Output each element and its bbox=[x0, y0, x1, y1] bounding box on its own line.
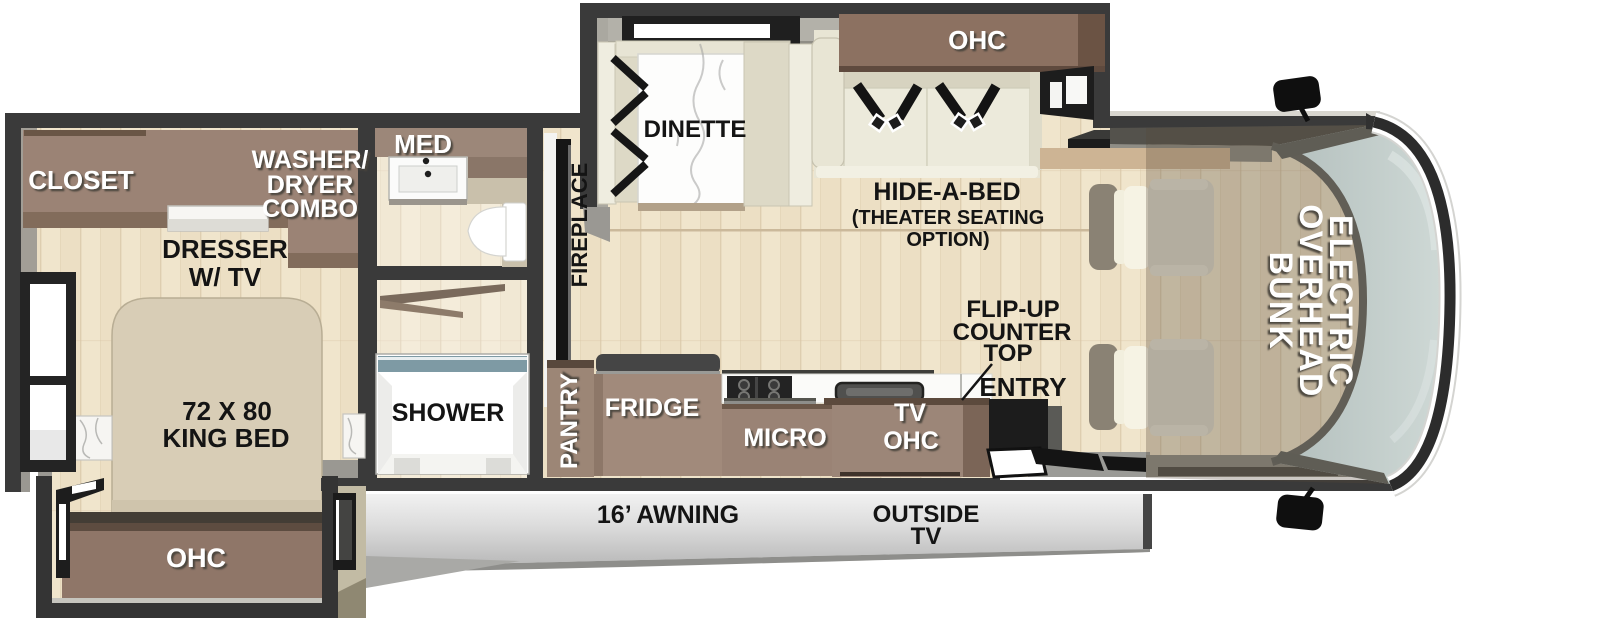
svg-text:DRESSER: DRESSER bbox=[162, 234, 288, 264]
svg-text:OHC: OHC bbox=[948, 25, 1006, 55]
svg-text:FRIDGE: FRIDGE bbox=[605, 394, 699, 422]
svg-text:PANTRY: PANTRY bbox=[556, 373, 583, 469]
svg-text:ENTRY: ENTRY bbox=[979, 372, 1066, 402]
svg-text:BUNK: BUNK bbox=[1263, 252, 1299, 350]
svg-text:TV: TV bbox=[911, 523, 942, 550]
svg-text:MED: MED bbox=[394, 129, 452, 159]
svg-text:HIDE-A-BED: HIDE-A-BED bbox=[873, 178, 1020, 206]
svg-text:KING BED: KING BED bbox=[162, 423, 289, 453]
svg-text:TV: TV bbox=[894, 399, 926, 427]
svg-text:OPTION): OPTION) bbox=[906, 229, 989, 251]
svg-text:16’ AWNING: 16’ AWNING bbox=[597, 501, 739, 529]
svg-text:72 X 80: 72 X 80 bbox=[182, 396, 272, 426]
svg-text:MICRO: MICRO bbox=[743, 424, 826, 452]
svg-text:CLOSET: CLOSET bbox=[28, 165, 134, 195]
svg-text:DINETTE: DINETTE bbox=[644, 116, 747, 143]
svg-text:W/ TV: W/ TV bbox=[189, 262, 262, 292]
svg-text:FIREPLACE: FIREPLACE bbox=[567, 163, 592, 288]
svg-text:OHC: OHC bbox=[883, 427, 939, 455]
svg-text:TOP: TOP bbox=[984, 340, 1033, 367]
svg-text:WASHER/: WASHER/ bbox=[252, 146, 369, 174]
svg-text:SHOWER: SHOWER bbox=[392, 399, 505, 427]
svg-text:(THEATER SEATING: (THEATER SEATING bbox=[852, 207, 1045, 229]
svg-text:COMBO: COMBO bbox=[262, 195, 358, 223]
svg-text:OHC: OHC bbox=[166, 543, 226, 573]
